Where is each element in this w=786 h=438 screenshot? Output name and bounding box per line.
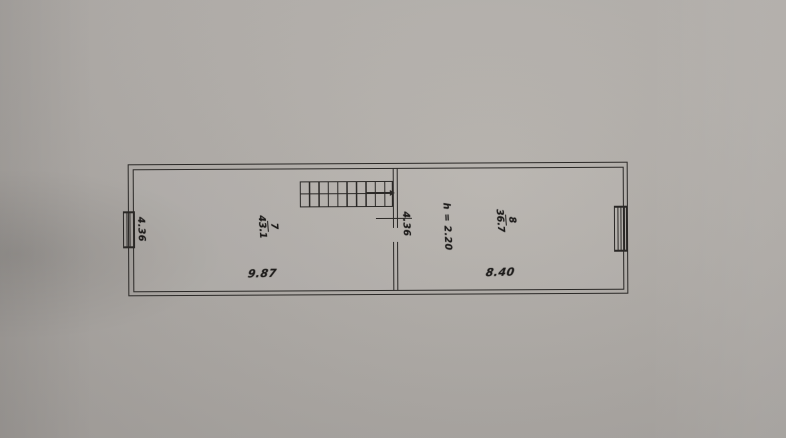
room-8-area: 36.7 <box>494 209 507 233</box>
photographed-floor-plan: { "plan": { "colors": { "ink": "#2a2826"… <box>0 0 786 438</box>
stairs-direction-arrow-icon <box>366 192 390 194</box>
room-7-number: 7 <box>267 220 280 231</box>
window-left-icon <box>123 211 135 248</box>
room-7-label: 7 43.1 <box>256 214 281 239</box>
room-8-label: 8 36.7 <box>494 208 519 233</box>
floor-plan: 4.36 7 43.1 4.36 h = 2.20 8 36.7 9.87 8.… <box>128 162 629 297</box>
room-7-area: 43.1 <box>256 215 269 239</box>
dimension-left-wall: 4.36 <box>135 217 147 242</box>
window-right-icon <box>613 206 626 252</box>
partition-wall-upper <box>392 169 398 228</box>
dimension-room-7-width: 9.87 <box>247 267 278 281</box>
ceiling-height-label: h = 2.20 <box>441 202 454 250</box>
partition-wall-lower <box>393 242 399 290</box>
room-8-number: 8 <box>505 214 518 225</box>
dimension-room-8-width: 8.40 <box>485 266 516 280</box>
dimension-partition: 4.36 <box>400 211 412 236</box>
staircase <box>300 181 393 207</box>
